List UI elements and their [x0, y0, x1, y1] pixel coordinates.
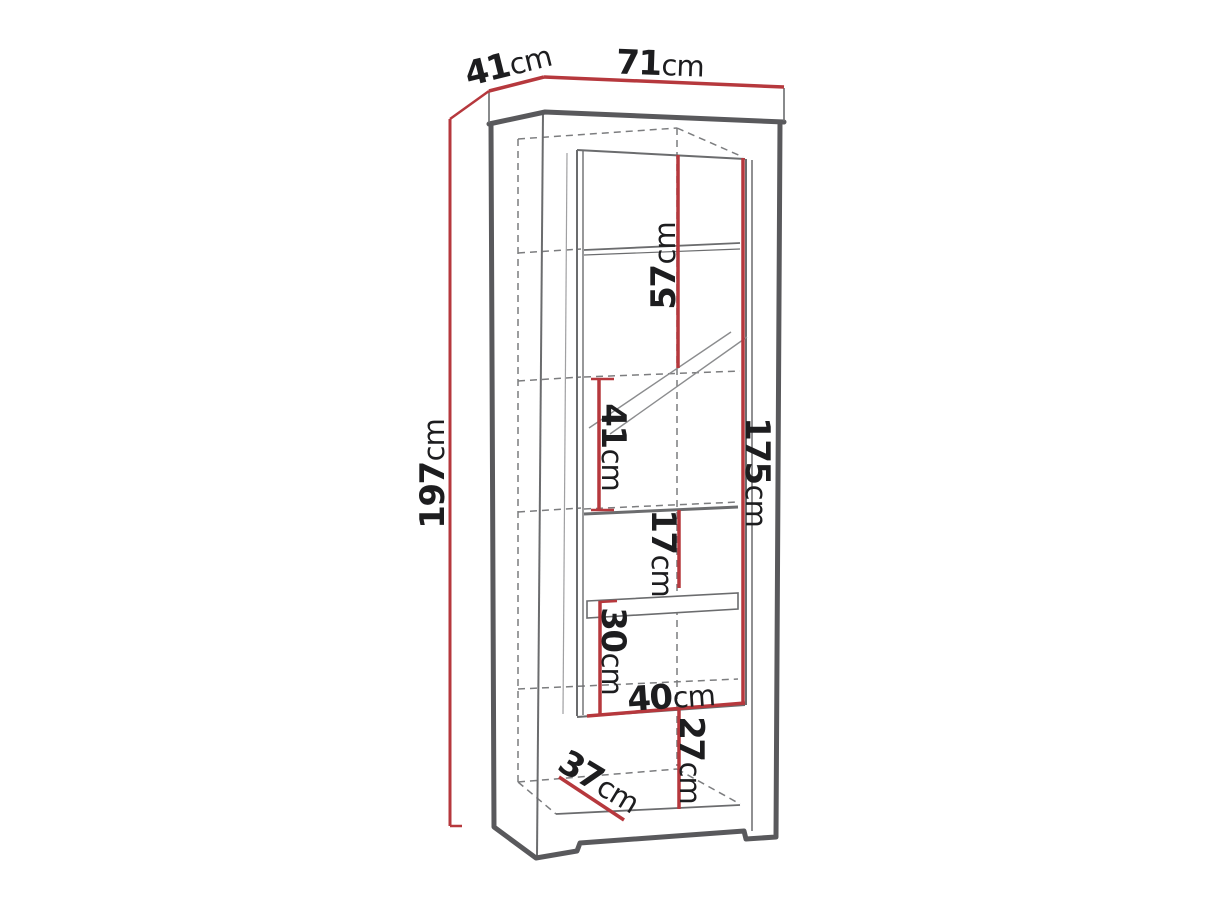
dimension-value: 175	[737, 417, 777, 483]
dimension-label-middle-section: 41cm	[596, 403, 630, 491]
dimension-label-total-height: 197cm	[416, 419, 450, 529]
dimension-label-upper-section: 57cm	[647, 222, 681, 310]
furniture-dimension-diagram: 41cm 71cm 197cm 57cm 41cm 175cm 17cm 30c…	[0, 0, 1214, 911]
dimension-unit: cm	[645, 555, 679, 597]
dimension-value: 17	[643, 509, 683, 553]
dimension-value: 197	[413, 462, 453, 528]
dimension-value: 41	[593, 403, 633, 447]
dimension-label-top-width: 71cm	[616, 45, 705, 82]
dimension-unit: cm	[648, 222, 682, 264]
dimension-unit: cm	[739, 485, 773, 527]
dimension-unit: cm	[595, 449, 629, 491]
dimension-unit: cm	[595, 653, 629, 695]
dimension-label-small-section: 17cm	[646, 509, 680, 597]
dimension-value: 71	[616, 42, 662, 84]
dimension-unit: cm	[671, 678, 715, 715]
dimension-label-door-height: 175cm	[740, 417, 774, 527]
dimension-value: 27	[671, 716, 711, 760]
dimension-label-bottom-section: 27cm	[674, 716, 708, 804]
dimension-unit: cm	[661, 48, 704, 83]
dimension-value: 40	[626, 677, 673, 720]
side-panel-inner-edge	[563, 153, 567, 714]
dimension-value: 57	[644, 265, 684, 309]
dimension-label-inner-width: 40cm	[626, 677, 716, 717]
dimension-unit: cm	[417, 419, 451, 461]
dimension-unit: cm	[673, 762, 707, 804]
dimension-label-lower-section: 30cm	[596, 607, 630, 695]
dimension-value: 30	[593, 607, 633, 651]
